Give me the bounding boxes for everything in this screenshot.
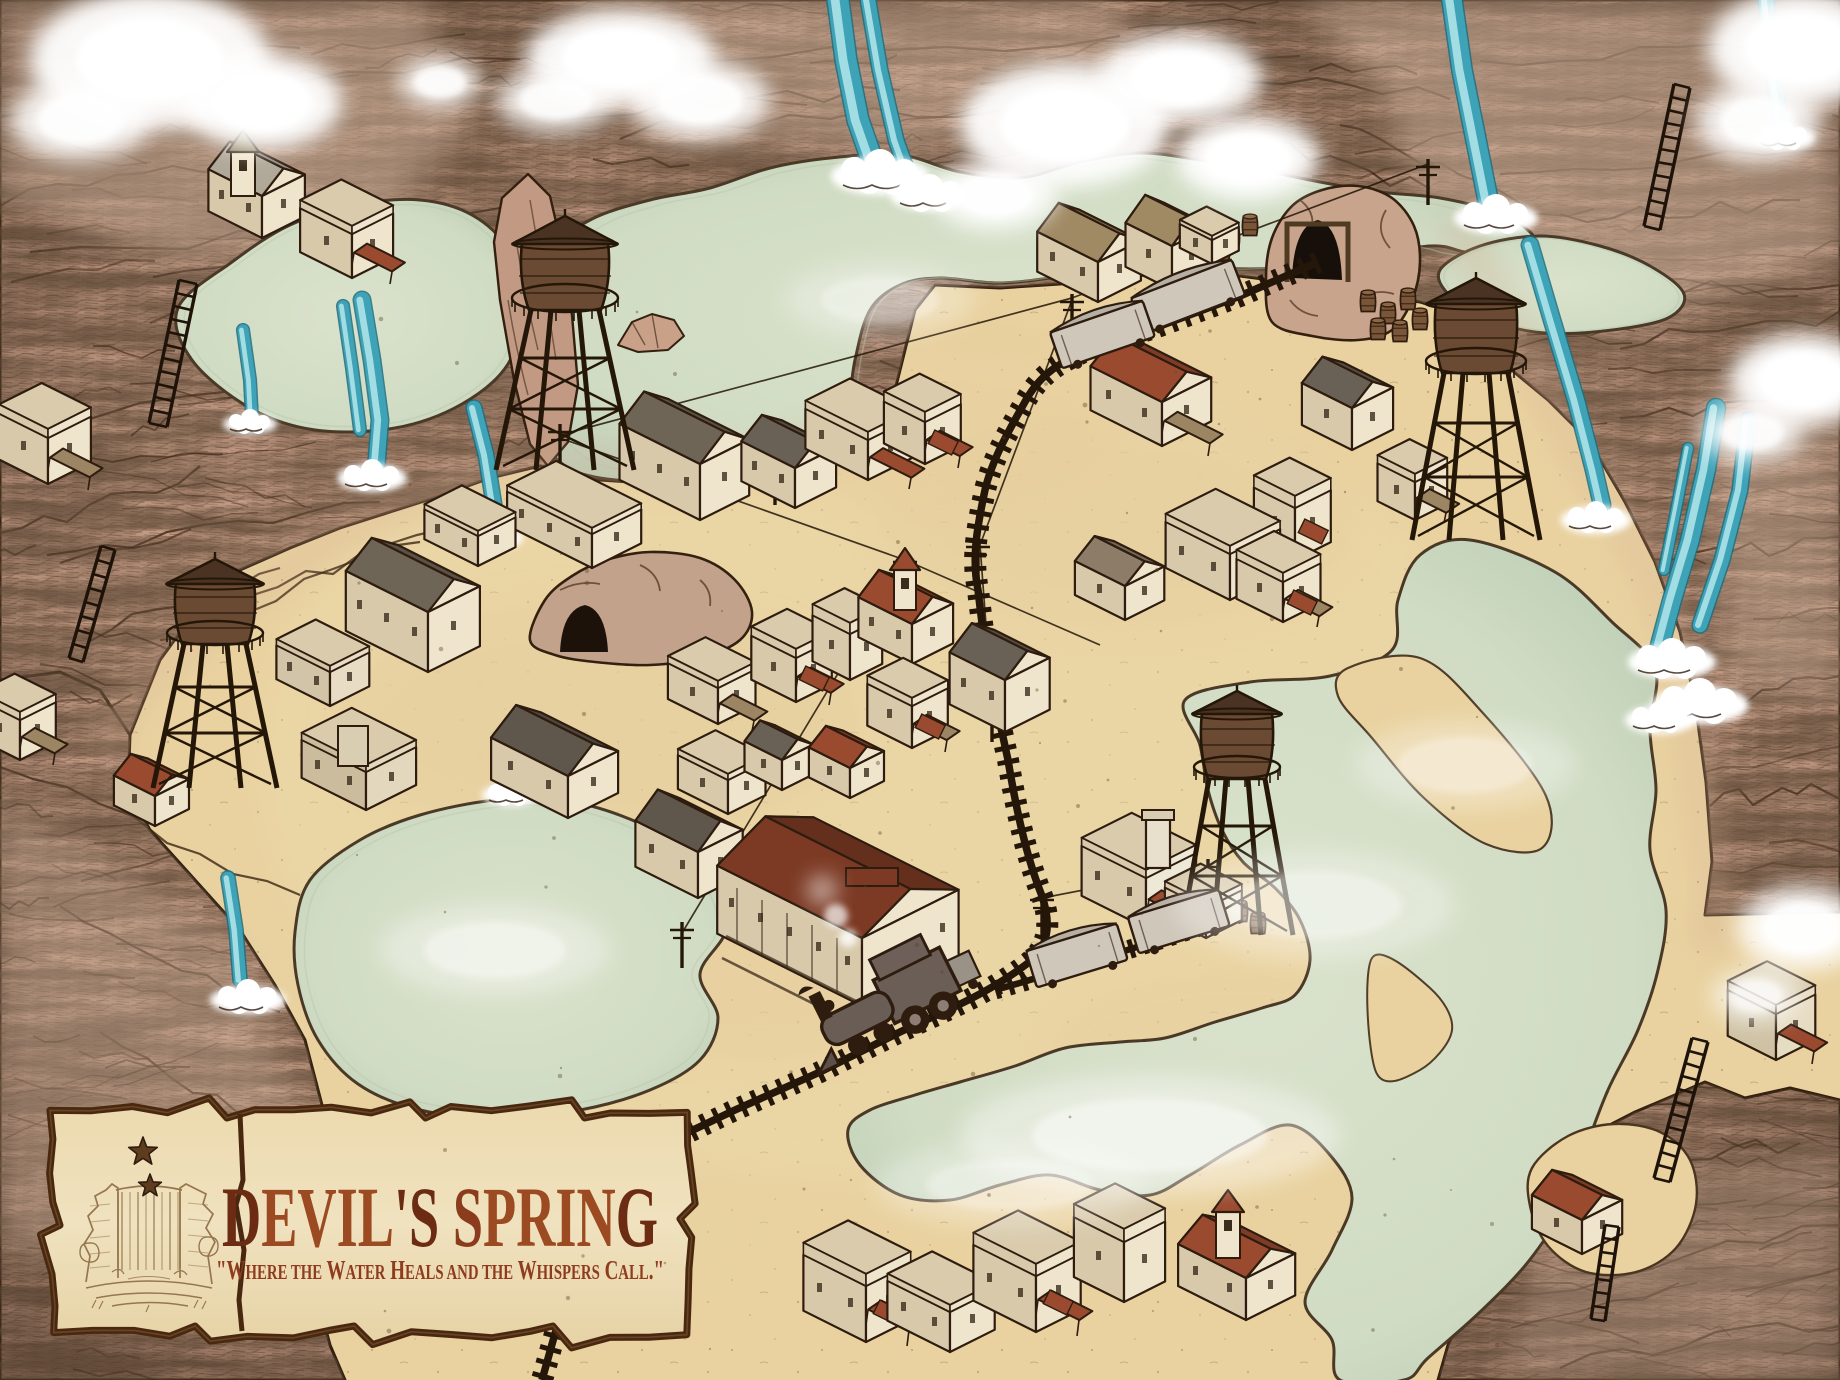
svg-text:"WHERE THE WATER HEALS AND THE: "WHERE THE WATER HEALS AND THE WHISPERS … [216,1255,664,1285]
svg-text:DEVIL'S SPRING: DEVIL'S SPRING [222,1169,658,1265]
